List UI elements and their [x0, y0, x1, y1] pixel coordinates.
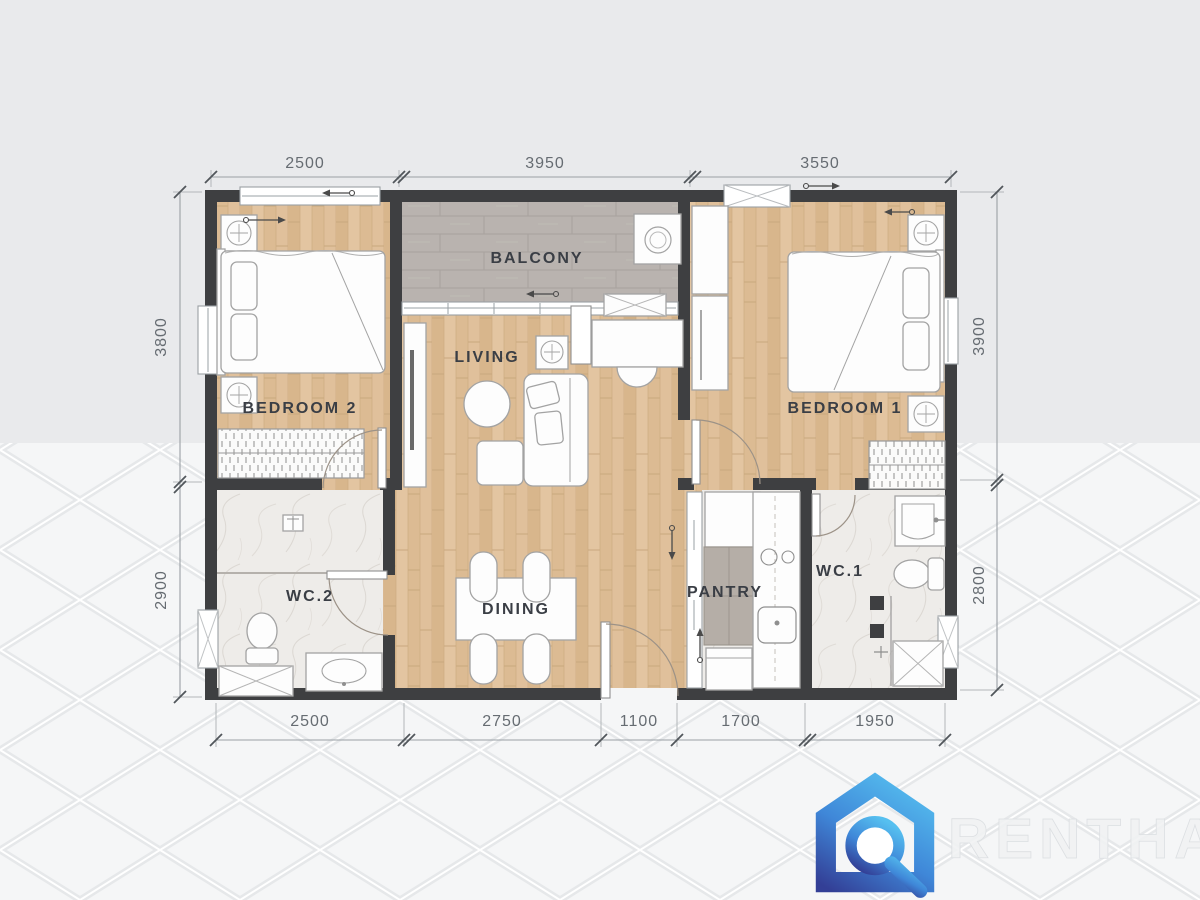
bedroom1-cabinet	[692, 206, 728, 390]
pantry-fridge	[706, 648, 752, 690]
pantry-sink	[758, 607, 796, 643]
coffee-table	[464, 381, 510, 427]
dim-right-2: 2800	[971, 565, 988, 605]
dim-right-1: 3900	[971, 316, 988, 356]
bedroom1-wardrobe	[869, 441, 945, 489]
bedroom1-top-window	[724, 185, 790, 207]
dim-bottom-5: 1950	[855, 713, 895, 730]
bedroom2-bed	[217, 249, 385, 375]
dim-top-1: 2500	[285, 155, 325, 172]
dining-chair	[470, 634, 497, 684]
bedroom1-ac-unit-top	[908, 215, 944, 251]
sofa	[524, 374, 588, 486]
wc1-toilet	[894, 558, 944, 590]
ac-condenser	[604, 294, 666, 316]
dim-top-3: 3550	[800, 155, 840, 172]
dim-bottom-3: 1100	[620, 713, 658, 730]
dim-bottom-4: 1700	[721, 713, 761, 730]
pantry-label: PANTRY	[687, 584, 763, 601]
wc1-label: WC.1	[816, 563, 864, 580]
side-table	[477, 441, 523, 485]
dining-chair	[523, 634, 550, 684]
tv-cabinet	[404, 323, 426, 487]
dim-top-2: 3950	[525, 155, 565, 172]
bedroom2-label: BEDROOM 2	[243, 400, 358, 417]
bedroom1-bed	[788, 250, 944, 392]
wc2-faucet	[283, 515, 303, 531]
bedroom1-label: BEDROOM 1	[788, 400, 903, 417]
wc2-shower	[219, 666, 293, 696]
wc2-label: WC.2	[286, 588, 334, 605]
dim-left-2: 2900	[153, 570, 170, 610]
floor-plan-canvas: BEDROOM 2 BALCONY LIVING BEDROOM 1 WC.2 …	[0, 0, 1200, 900]
washing-machine	[634, 214, 681, 264]
dining-label: DINING	[482, 601, 550, 618]
bedroom2-top-window	[240, 187, 380, 205]
wc2-vanity-sink	[306, 653, 382, 691]
balcony-label: BALCONY	[490, 250, 583, 267]
wc2-left-window	[198, 610, 218, 668]
bedroom2-wardrobe	[218, 429, 364, 478]
wc1-vanity-sink	[895, 496, 946, 546]
bedroom1-ac-unit-bottom	[908, 396, 944, 432]
dim-bottom-1: 2500	[290, 713, 330, 730]
wc2-toilet	[246, 613, 278, 664]
living-ac-unit	[536, 336, 568, 369]
balcony-door-leaf	[571, 306, 591, 364]
dim-left-1: 3800	[153, 317, 170, 357]
renthai-brand-text: RENTHAI	[948, 807, 1200, 871]
living-label: LIVING	[454, 349, 519, 366]
dim-bottom-2: 2750	[482, 713, 522, 730]
dining-chair	[470, 552, 497, 602]
dining-chair	[523, 552, 550, 602]
floor-plan-page: BEDROOM 2 BALCONY LIVING BEDROOM 1 WC.2 …	[0, 0, 1200, 900]
bedroom2-left-window	[198, 306, 218, 374]
